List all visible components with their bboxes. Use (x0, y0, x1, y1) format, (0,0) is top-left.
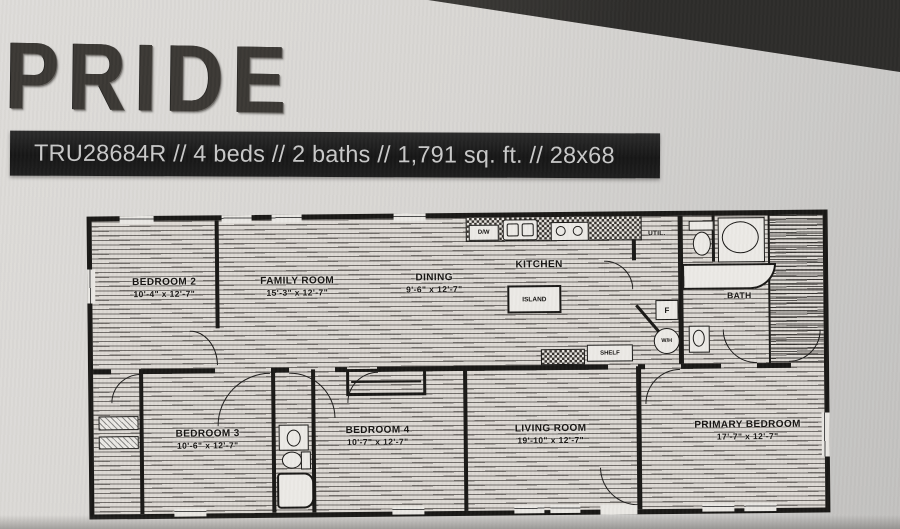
bath-vanity-counter (682, 263, 776, 290)
room-label-kitchen: KITCHEN (515, 259, 562, 271)
wall (757, 363, 791, 368)
window (394, 213, 426, 221)
photo-bottom-shade (0, 515, 900, 529)
window (87, 269, 95, 303)
wall (139, 368, 215, 374)
wall (93, 369, 111, 374)
kitchen-sink-fixture (503, 219, 538, 240)
window (392, 506, 424, 514)
room-name: KITCHEN (515, 259, 562, 271)
room-dims: 15'-3" x 12'-7" (260, 287, 334, 298)
room-dims: 10'-4" x 12'-7" (132, 288, 196, 299)
photo-background: PRIDE TRU28684R // 4 beds // 2 baths // … (0, 0, 900, 529)
wall (681, 363, 721, 368)
room-name: BEDROOM 3 (176, 428, 240, 440)
room-name: BEDROOM 4 (345, 424, 409, 436)
kitchen-island: ISLAND (507, 285, 561, 314)
stove-burner (573, 226, 583, 236)
stove-fixture (551, 222, 589, 241)
sink-basin (522, 223, 534, 236)
floor-plan: D/W ISLAND SHELF F W/H (87, 209, 831, 519)
room-label-dining: DINING 9'-6" x 12'-7" (406, 272, 463, 295)
room-name: PRIMARY BEDROOM (694, 419, 801, 432)
room-name: UTIL. (648, 230, 665, 238)
door-arc (190, 330, 218, 365)
furnace-fixture: F (655, 300, 678, 320)
door-arc (645, 369, 680, 404)
dishwasher-label: D/W (478, 230, 490, 236)
room-name: BATH (727, 291, 752, 301)
lavatory-fixture (689, 326, 710, 353)
room-label-bath: BATH (727, 291, 752, 301)
spec-line: TRU28684R // 4 beds // 2 baths // 1,791 … (10, 140, 615, 170)
door-arc (111, 374, 140, 403)
window (821, 412, 829, 456)
island-label: ISLAND (522, 296, 546, 303)
room-label-bedroom3: BEDROOM 3 10'-6" x 12'-7" (176, 428, 240, 451)
dishwasher-fixture: D/W (469, 225, 499, 241)
wall (271, 370, 276, 513)
bath2-sink-fixture (279, 424, 309, 450)
wall (463, 368, 468, 511)
room-name: BEDROOM 2 (132, 277, 196, 289)
closet-shelf (99, 436, 139, 449)
door-arc (604, 260, 633, 289)
garden-tub-fixture (718, 217, 765, 262)
room-label-utility: UTIL. (648, 230, 665, 238)
lavatory-bowl (693, 330, 705, 347)
toilet-fixture (301, 451, 311, 469)
bathtub-fixture (277, 472, 314, 508)
shelf-fixture: SHELF (587, 344, 633, 361)
toilet-fixture (689, 221, 714, 231)
room-label-living-room: LIVING ROOM 19'-10" x 12'-7" (515, 423, 587, 446)
water-heater-label: W/H (661, 338, 672, 344)
room-dims: 17'-7" x 12'-7" (694, 430, 801, 442)
furnace-label: F (664, 305, 669, 314)
door-arc (289, 372, 335, 418)
room-name: DINING (406, 272, 463, 284)
room-label-family-room: FAMILY ROOM 15'-3" x 12'-7" (260, 275, 334, 298)
room-label-bedroom2: BEDROOM 2 10'-4" x 12'-7" (132, 277, 196, 300)
window (702, 503, 734, 511)
room-name: LIVING ROOM (515, 423, 587, 435)
door-arc (600, 467, 638, 505)
window (272, 214, 302, 222)
sink-basin (507, 223, 519, 236)
wall (215, 220, 220, 328)
door-arc (217, 373, 271, 427)
window (744, 503, 776, 511)
window (120, 216, 154, 224)
room-dims: 19'-10" x 12'-7" (515, 434, 587, 445)
toilet-bowl (282, 452, 302, 469)
stove-burner (556, 226, 566, 236)
tub-basin (722, 221, 759, 253)
toilet-bowl (693, 232, 711, 256)
bath2-sink-bowl (287, 430, 301, 447)
room-label-bedroom4: BEDROOM 4 10'-7" x 12'-7" (345, 424, 409, 447)
room-name: FAMILY ROOM (260, 275, 334, 287)
room-dims: 10'-7" x 12'-7" (346, 436, 410, 447)
brand-title: PRIDE (5, 34, 295, 124)
door-arc (723, 329, 757, 363)
spec-banner: TRU28684R // 4 beds // 2 baths // 1,791 … (10, 131, 660, 179)
window (550, 505, 580, 513)
room-label-primary-bedroom: PRIMARY BEDROOM 17'-7" x 12'-7" (694, 419, 801, 442)
closet-shelf (98, 416, 138, 430)
window (514, 505, 544, 513)
water-heater-fixture: W/H (654, 328, 680, 354)
room-dims: 9'-6" x 12'-7" (406, 283, 463, 294)
exterior-door-opening (600, 504, 637, 514)
room-dims: 10'-6" x 12'-7" (176, 440, 240, 451)
window (222, 215, 252, 223)
shelf-label: SHELF (600, 350, 620, 356)
pantry-counter (541, 349, 585, 365)
